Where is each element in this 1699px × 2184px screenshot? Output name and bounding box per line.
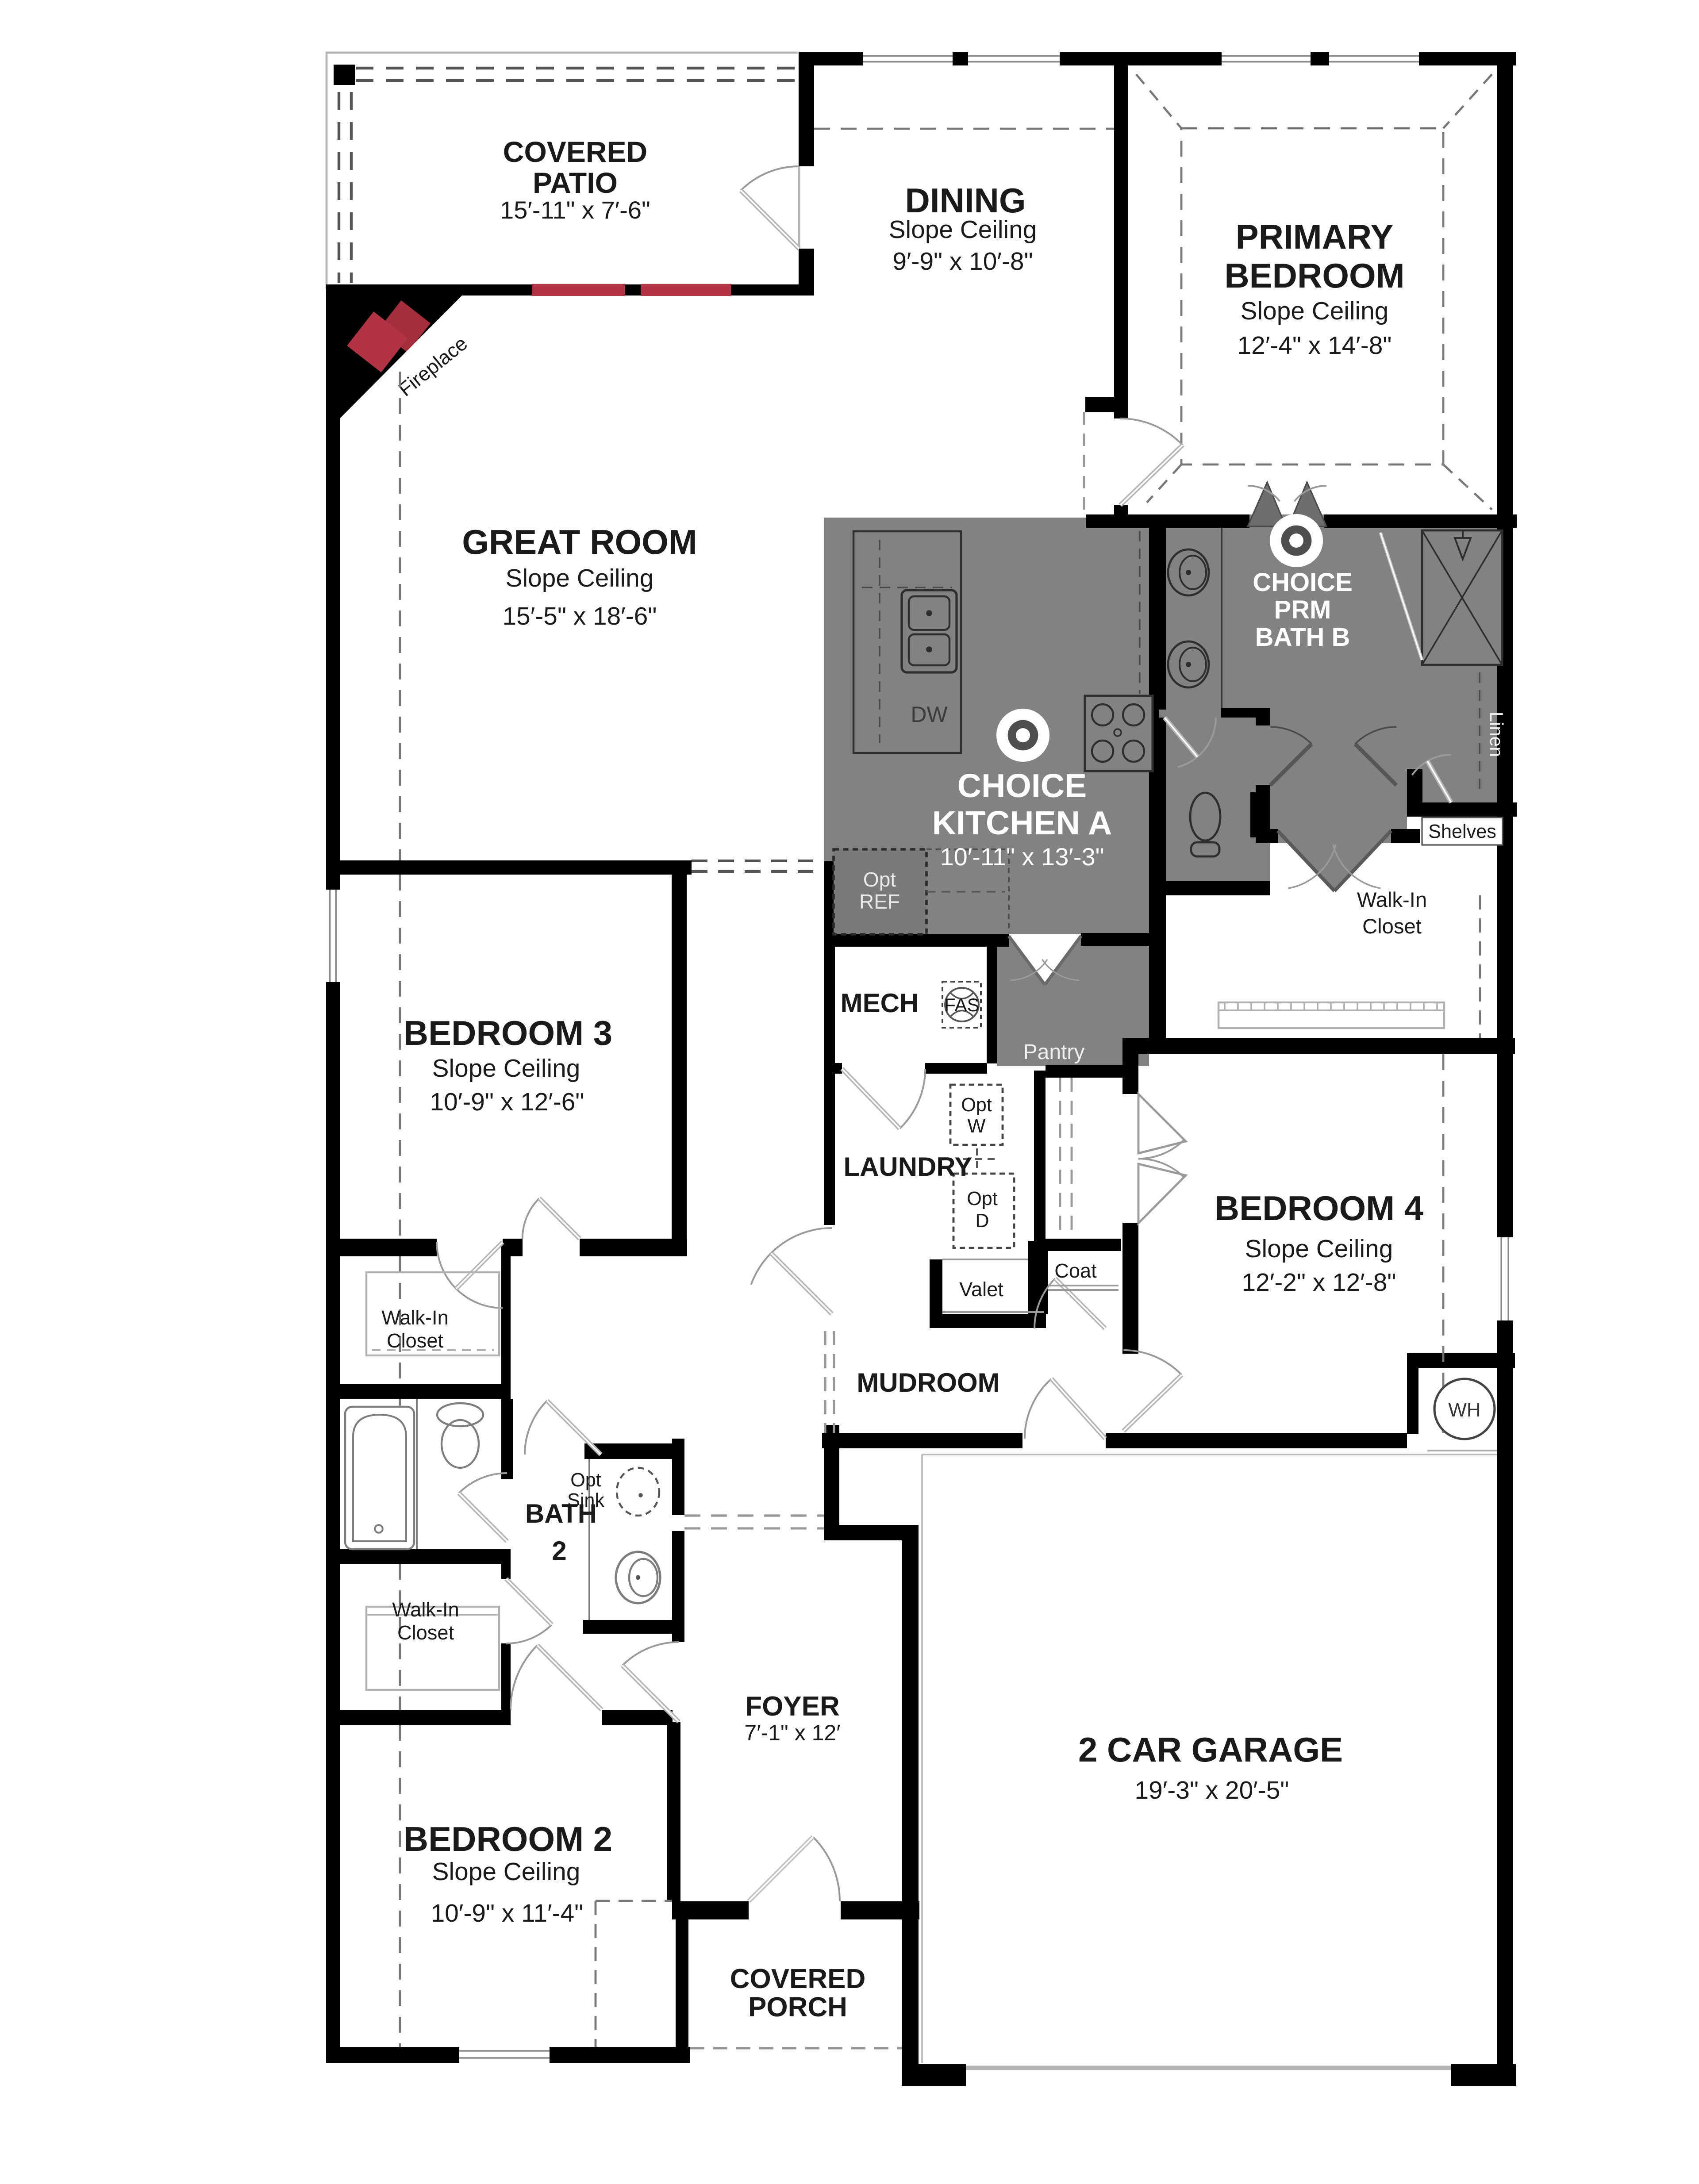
svg-text:7′-1" x 12′: 7′-1" x 12′ [744,1720,840,1745]
svg-text:2: 2 [552,1536,566,1566]
svg-text:BEDROOM 3: BEDROOM 3 [404,1013,612,1052]
svg-text:Walk-In: Walk-In [381,1306,448,1329]
svg-text:COVERED: COVERED [503,135,647,168]
svg-text:BEDROOM 2: BEDROOM 2 [404,1819,612,1858]
svg-text:Opt: Opt [961,1094,992,1116]
svg-text:CHOICE: CHOICE [1253,568,1353,597]
svg-text:Slope Ceiling: Slope Ceiling [432,1055,580,1082]
svg-text:BATH: BATH [525,1499,597,1528]
svg-text:15′-11" x 7′-6": 15′-11" x 7′-6" [500,196,650,224]
svg-text:PATIO: PATIO [533,166,618,199]
svg-text:Closet: Closet [397,1621,454,1644]
svg-text:MECH: MECH [841,988,919,1018]
svg-text:19′-3" x 20′-5": 19′-3" x 20′-5" [1135,1777,1289,1804]
svg-text:Opt: Opt [570,1470,601,1491]
svg-text:WH: WH [1448,1399,1480,1421]
svg-text:Slope Ceiling: Slope Ceiling [432,1858,580,1886]
svg-text:2 CAR GARAGE: 2 CAR GARAGE [1078,1730,1343,1769]
svg-text:PORCH: PORCH [748,1992,847,2023]
svg-text:Valet: Valet [959,1278,1003,1301]
svg-text:CHOICE: CHOICE [957,767,1087,804]
svg-text:KITCHEN A: KITCHEN A [932,804,1112,841]
svg-text:10′-9" x 11′-4": 10′-9" x 11′-4" [431,1900,584,1927]
svg-text:Slope Ceiling: Slope Ceiling [889,216,1037,244]
svg-text:Walk-In: Walk-In [392,1598,459,1621]
svg-text:BATH B: BATH B [1255,623,1350,652]
svg-text:Slope Ceiling: Slope Ceiling [1245,1235,1393,1263]
svg-text:15′-5" x 18′-6": 15′-5" x 18′-6" [503,603,657,630]
svg-text:12′-4" x 14′-8": 12′-4" x 14′-8" [1238,332,1392,360]
svg-text:Closet: Closet [387,1329,444,1352]
svg-text:Linen: Linen [1486,712,1507,757]
svg-text:W: W [968,1116,986,1137]
svg-text:PRM: PRM [1274,595,1331,624]
svg-text:Opt: Opt [967,1188,998,1209]
svg-text:GREAT ROOM: GREAT ROOM [462,522,697,561]
svg-text:LAUNDRY: LAUNDRY [843,1152,972,1182]
svg-text:PRIMARY: PRIMARY [1236,217,1394,256]
svg-text:Slope Ceiling: Slope Ceiling [506,564,654,592]
svg-text:Slope Ceiling: Slope Ceiling [1241,297,1389,325]
svg-text:Opt: Opt [863,868,896,891]
svg-text:BEDROOM 4: BEDROOM 4 [1215,1189,1423,1228]
svg-text:9′-9" x 10′-8": 9′-9" x 10′-8" [892,248,1033,276]
svg-text:Walk-In: Walk-In [1357,888,1427,912]
svg-text:Pantry: Pantry [1023,1040,1085,1064]
svg-text:10′-9" x 12′-6": 10′-9" x 12′-6" [430,1088,584,1116]
svg-text:REF: REF [859,890,900,913]
svg-text:12′-2" x 12′-8": 12′-2" x 12′-8" [1242,1269,1396,1297]
svg-text:D: D [975,1210,989,1232]
svg-text:COVERED: COVERED [730,1964,866,1994]
svg-text:10′-11" x 13′-3": 10′-11" x 13′-3" [940,843,1104,871]
svg-text:DINING: DINING [905,181,1026,220]
svg-text:FAS: FAS [944,994,979,1015]
svg-text:Coat: Coat [1054,1259,1097,1282]
svg-text:Shelves: Shelves [1428,821,1496,842]
svg-text:Closet: Closet [1362,915,1422,938]
svg-text:FOYER: FOYER [745,1691,840,1722]
svg-text:BEDROOM: BEDROOM [1224,256,1404,295]
svg-text:DW: DW [911,702,948,727]
svg-text:MUDROOM: MUDROOM [857,1368,999,1397]
